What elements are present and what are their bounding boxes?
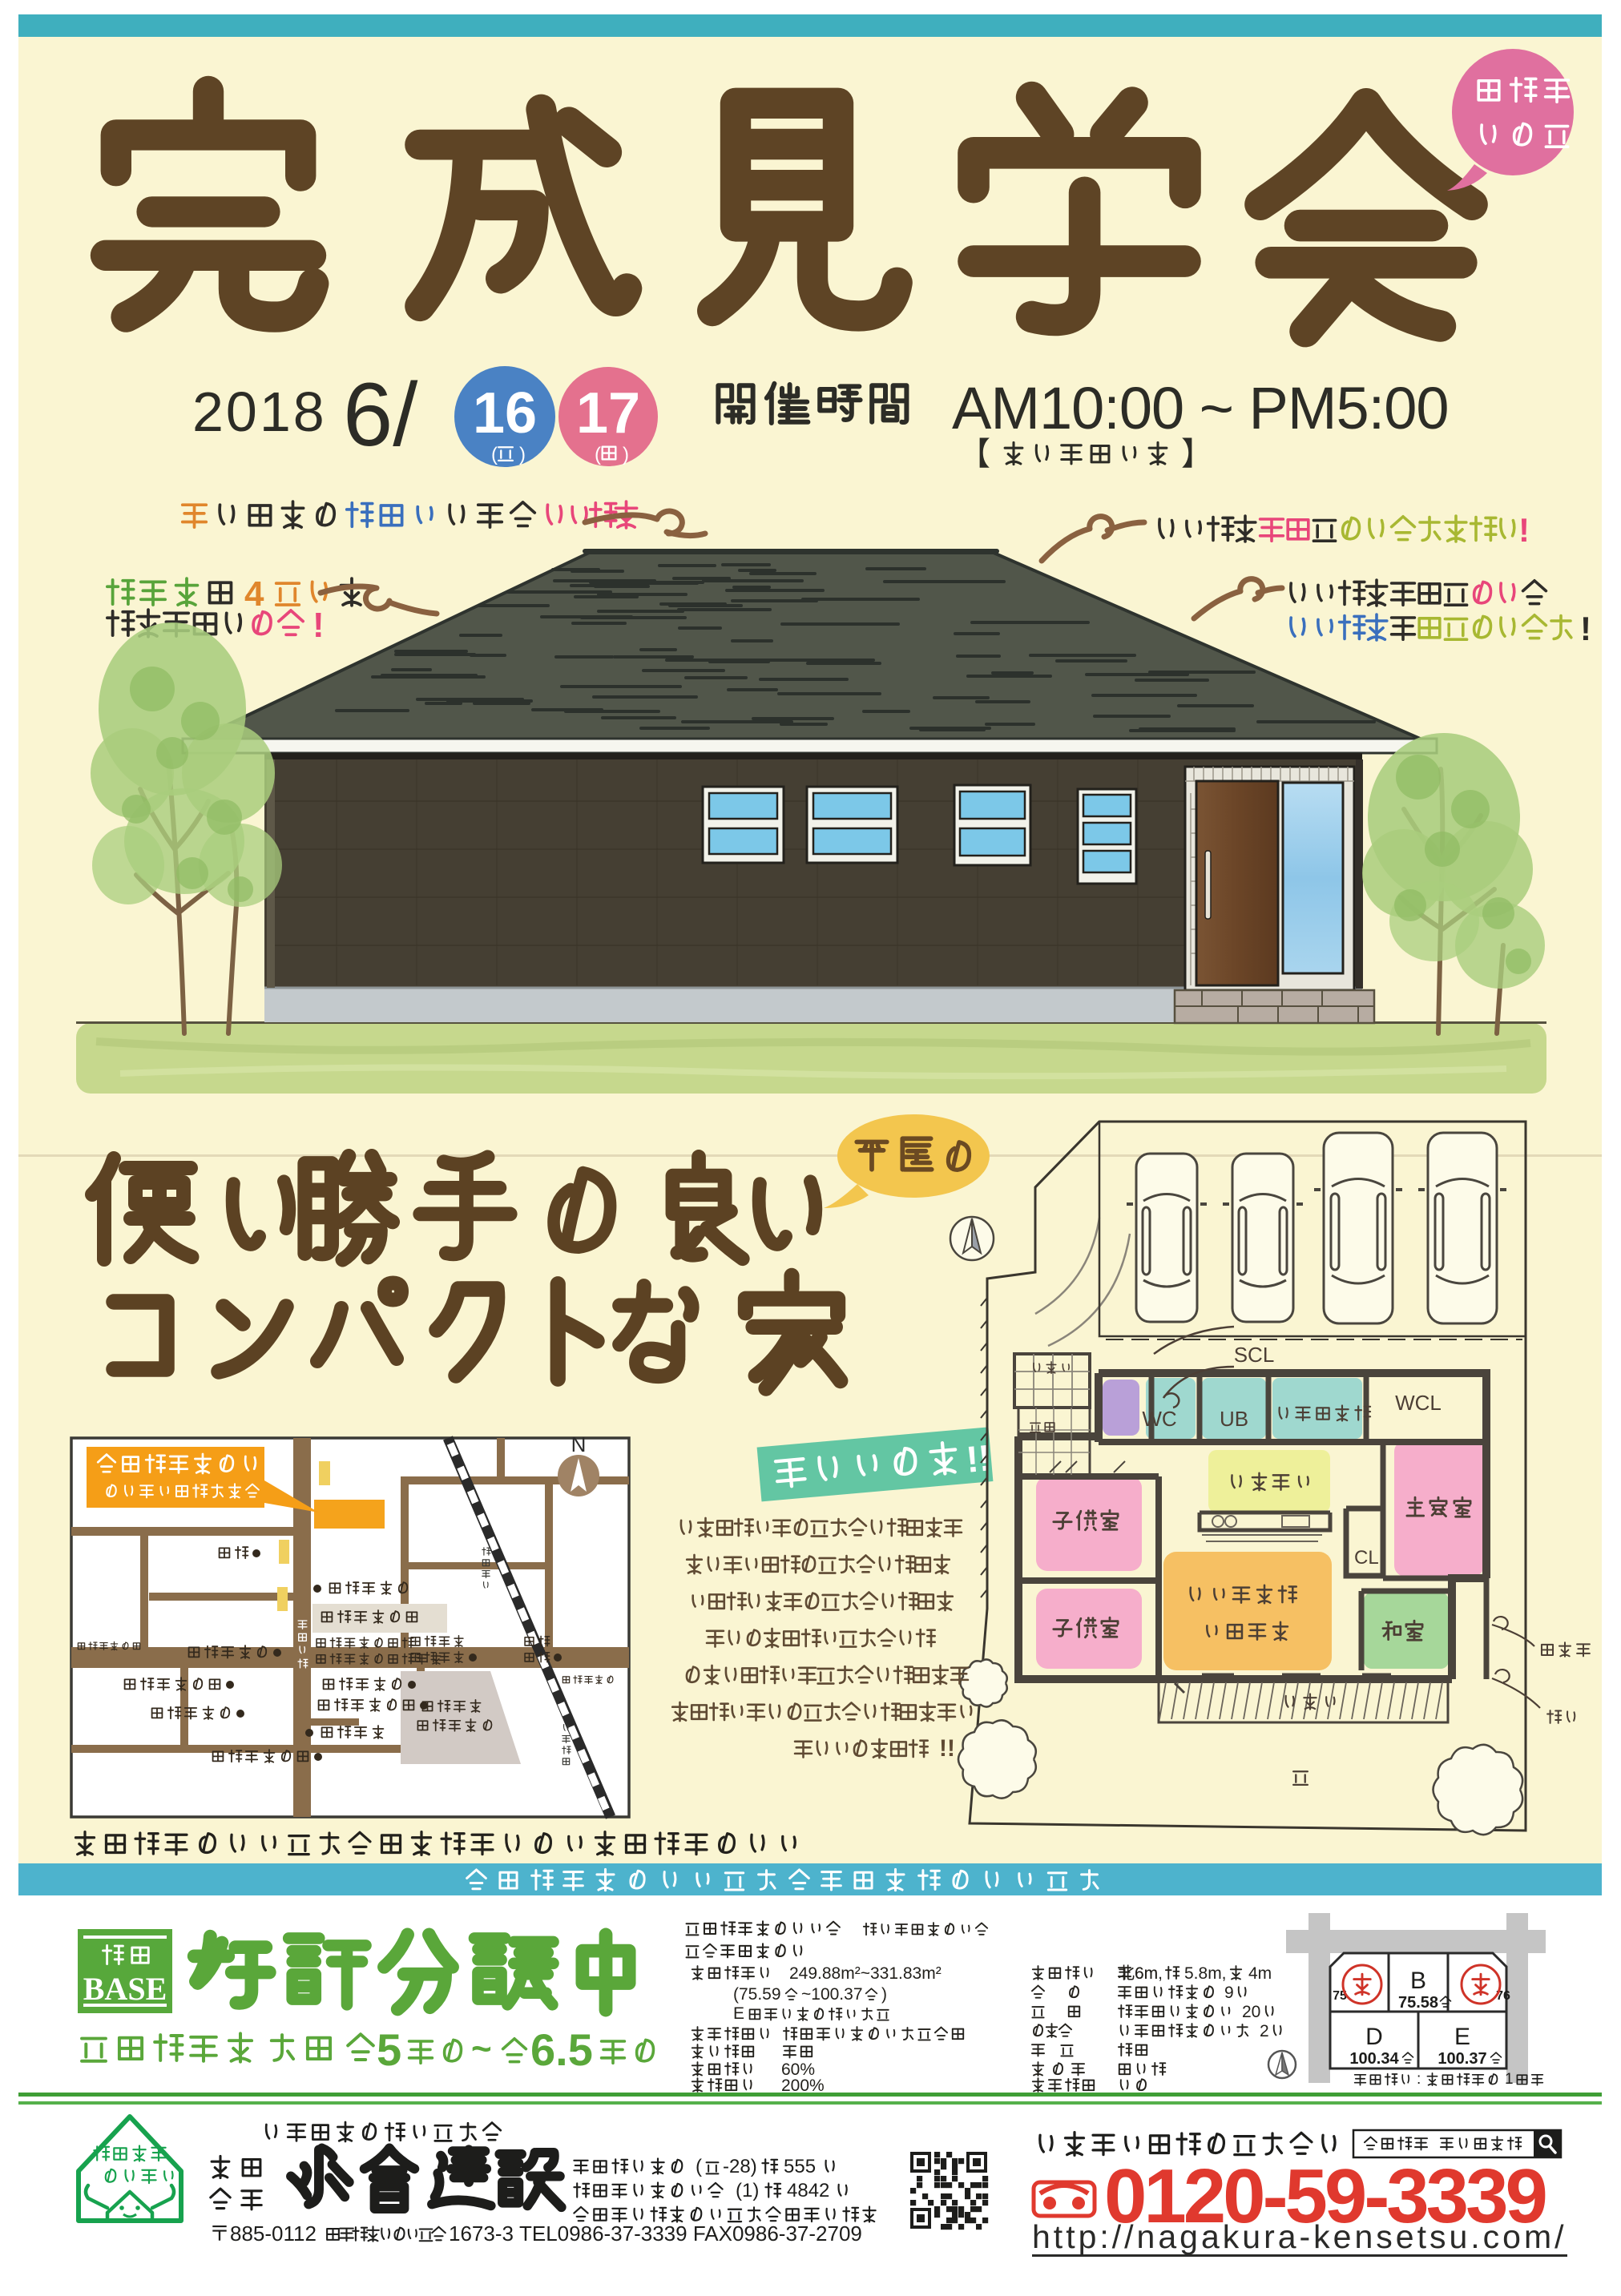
svg-text:!: ! bbox=[1580, 610, 1591, 647]
svg-text:1: 1 bbox=[1505, 2071, 1514, 2088]
svg-text:1673-3: 1673-3 bbox=[449, 2221, 514, 2246]
svg-text:2018: 2018 bbox=[192, 381, 327, 443]
svg-text:UB: UB bbox=[1220, 1407, 1248, 1431]
svg-text:http://nagakura-kensetsu.com/: http://nagakura-kensetsu.com/ bbox=[1032, 2218, 1567, 2255]
svg-text:16: 16 bbox=[473, 381, 537, 445]
svg-text:): ) bbox=[881, 1985, 887, 2004]
svg-text:WC: WC bbox=[1142, 1407, 1176, 1431]
svg-text:5.8m,: 5.8m, bbox=[1184, 1964, 1227, 1983]
svg-text:75.58: 75.58 bbox=[1398, 1994, 1438, 2012]
svg-text:TEL0986-37-3339 FAX0986-37-270: TEL0986-37-3339 FAX0986-37-2709 bbox=[519, 2221, 862, 2246]
svg-text:N: N bbox=[571, 1432, 587, 1456]
svg-text:5: 5 bbox=[377, 2024, 401, 2075]
svg-text:6/: 6/ bbox=[343, 365, 418, 465]
svg-text:4: 4 bbox=[244, 574, 264, 614]
svg-text:-28): -28) bbox=[723, 2156, 757, 2177]
svg-text:6.5: 6.5 bbox=[530, 2024, 593, 2075]
svg-text:): ) bbox=[623, 444, 629, 465]
svg-text:(: ( bbox=[696, 2156, 702, 2177]
svg-text:200%: 200% bbox=[781, 2076, 825, 2095]
svg-text:~: ~ bbox=[471, 2029, 492, 2068]
svg-text:!: ! bbox=[1518, 511, 1530, 549]
svg-text:D: D bbox=[1365, 2024, 1383, 2050]
svg-text:CL: CL bbox=[1354, 1547, 1379, 1569]
svg-text:E: E bbox=[733, 2004, 744, 2023]
svg-text:WCL: WCL bbox=[1395, 1391, 1442, 1415]
svg-text:!!: !! bbox=[939, 1735, 955, 1762]
svg-text:!: ! bbox=[313, 606, 325, 645]
svg-text:B: B bbox=[1410, 1968, 1426, 1994]
svg-text:6m,: 6m, bbox=[1135, 1964, 1163, 1983]
svg-text:20: 20 bbox=[1242, 2003, 1260, 2021]
svg-text:100.34: 100.34 bbox=[1349, 2050, 1399, 2068]
svg-text:〒885-0112: 〒885-0112 bbox=[209, 2221, 317, 2246]
svg-text:BASE: BASE bbox=[83, 1971, 167, 2007]
svg-text:4m: 4m bbox=[1248, 1964, 1272, 1983]
svg-text:(1): (1) bbox=[736, 2180, 759, 2201]
svg-text:】: 】 bbox=[1181, 437, 1213, 472]
svg-text:(: ( bbox=[491, 444, 498, 465]
svg-text:2: 2 bbox=[1260, 2022, 1269, 2040]
svg-text:4842: 4842 bbox=[787, 2180, 829, 2201]
svg-text:555: 555 bbox=[784, 2156, 816, 2177]
svg-text:100.37: 100.37 bbox=[1438, 2050, 1486, 2068]
svg-text:【: 【 bbox=[958, 437, 990, 472]
svg-text:): ) bbox=[519, 444, 526, 465]
svg-text:9: 9 bbox=[1224, 1984, 1234, 2002]
svg-text:249.88m²~331.83m²: 249.88m²~331.83m² bbox=[789, 1964, 942, 1983]
svg-text:17: 17 bbox=[576, 381, 640, 445]
svg-text::: : bbox=[1417, 2071, 1421, 2088]
svg-text:(75.59: (75.59 bbox=[733, 1985, 781, 2004]
svg-text:E: E bbox=[1454, 2024, 1470, 2050]
svg-text:(: ( bbox=[595, 444, 601, 465]
svg-text:~100.37: ~100.37 bbox=[801, 1985, 863, 2004]
svg-text:SCL: SCL bbox=[1234, 1343, 1275, 1367]
svg-text:AM10:00 ~ PM5:00: AM10:00 ~ PM5:00 bbox=[952, 375, 1449, 441]
